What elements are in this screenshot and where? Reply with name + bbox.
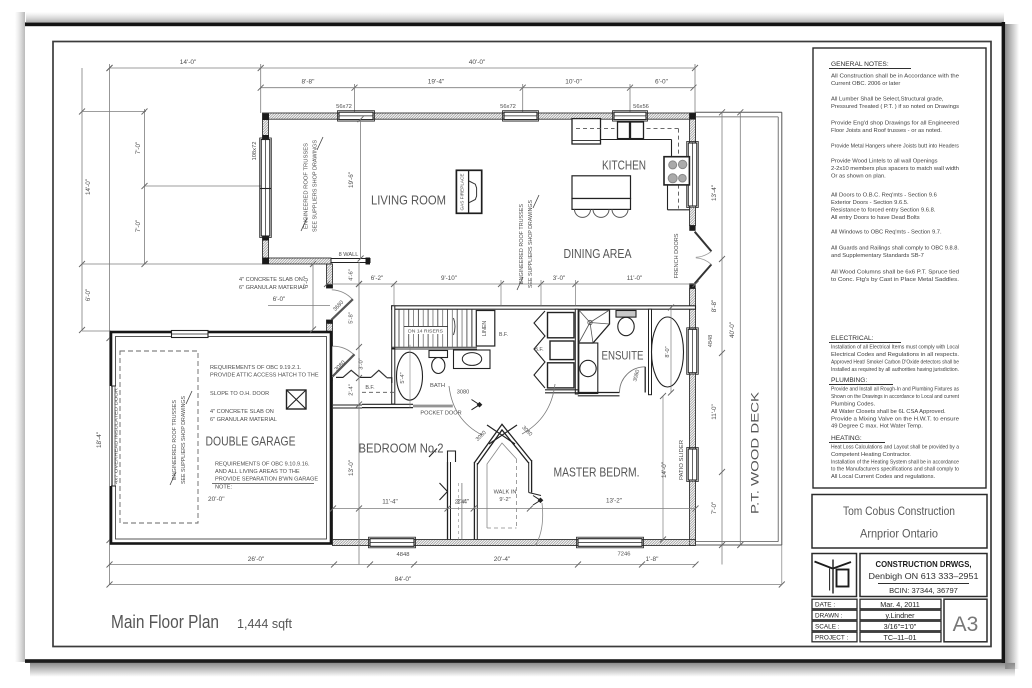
svg-text:BCIN: 37344, 36797: BCIN: 37344, 36797 — [889, 586, 958, 595]
svg-text:Or as shown on plan.: Or as shown on plan. — [831, 174, 886, 180]
svg-text:ENGINEERED ROOF TRUSSES: ENGINEERED ROOF TRUSSES — [172, 399, 178, 480]
svg-text:11'-0": 11'-0" — [627, 275, 643, 282]
svg-text:GAS FIREPLACE: GAS FIREPLACE — [460, 174, 465, 211]
svg-text:19'-6": 19'-6" — [348, 172, 355, 188]
svg-text:13'-2": 13'-2" — [606, 498, 622, 505]
svg-text:5'-4": 5'-4" — [400, 372, 406, 383]
svg-text:Plumbing Codes.: Plumbing Codes. — [831, 402, 876, 408]
svg-text:BATH: BATH — [430, 383, 445, 389]
svg-text:MASTER BEDRM.: MASTER BEDRM. — [554, 465, 640, 480]
svg-text:POCKET DOOR: POCKET DOOR — [420, 411, 461, 417]
svg-text:All Lumber Shall be Select,Str: All Lumber Shall be Select,Structural gr… — [831, 97, 944, 103]
svg-text:14'-0": 14'-0" — [180, 59, 197, 66]
svg-text:Approved Heat/ Smoke/ Carbon D: Approved Heat/ Smoke/ Carbon D'Oxide det… — [831, 360, 959, 366]
svg-text:20'-0": 20'-0" — [208, 496, 225, 503]
svg-text:REQUIREMENTS OF OBC 9.10.9.16.: REQUIREMENTS OF OBC 9.10.9.16. — [215, 462, 310, 468]
svg-text:3/16"=1'0": 3/16"=1'0" — [884, 622, 917, 631]
svg-text:14'-0": 14'-0" — [85, 179, 92, 195]
svg-text:3080: 3080 — [457, 390, 469, 396]
svg-text:Provide a Mixing Valve on the: Provide a Mixing Valve on the H.W.T. to … — [831, 417, 959, 423]
svg-text:DRAWN :: DRAWN : — [815, 613, 843, 620]
svg-text:ENSUITE: ENSUITE — [602, 351, 644, 363]
svg-text:2'-4": 2'-4" — [457, 499, 470, 506]
svg-text:DN 14 RISERS: DN 14 RISERS — [408, 329, 443, 335]
svg-text:DOUBLE GARAGE: DOUBLE GARAGE — [206, 434, 296, 449]
svg-text:49 Degree C max. Hot Water Tem: 49 Degree C max. Hot Water Temp. — [831, 424, 923, 430]
svg-text:TC–11–01: TC–11–01 — [883, 633, 916, 642]
svg-text:Installation of all Electrical: Installation of all Electrical Items mus… — [831, 345, 959, 351]
svg-text:NOTE:: NOTE: — [215, 485, 233, 491]
svg-text:Main Floor Plan: Main Floor Plan — [111, 612, 219, 632]
svg-text:8'-8": 8'-8" — [711, 300, 718, 313]
svg-text:ENGINEERED ROOF TRUSSES: ENGINEERED ROOF TRUSSES — [519, 203, 525, 284]
svg-text:Denbigh ON 613 333–2951: Denbigh ON 613 333–2951 — [869, 571, 979, 581]
svg-text:All Wood Columns shall be 6x6: All Wood Columns shall be 6x6 P.T. Spruc… — [831, 270, 959, 276]
svg-text:DATE :: DATE : — [815, 602, 835, 609]
svg-text:4'-6": 4'-6" — [349, 269, 355, 281]
svg-text:4" CONCRETE SLAB ON: 4" CONCRETE SLAB ON — [239, 277, 303, 283]
svg-text:Installed as required by all a: Installed as required by all authorities… — [831, 367, 959, 373]
svg-text:4x7 OVERHEAD INSULATED DOOR: 4x7 OVERHEAD INSULATED DOOR — [114, 387, 120, 484]
svg-text:11'-0": 11'-0" — [711, 404, 718, 420]
svg-text:A3: A3 — [953, 613, 979, 636]
svg-text:PROVIDE ATTIC ACCESS HATCH TO: PROVIDE ATTIC ACCESS HATCH TO THE — [210, 373, 319, 379]
svg-text:2-2x10 members plus spacers to: 2-2x10 members plus spacers to match wal… — [831, 166, 959, 172]
svg-text:Provide Metal Hangers where Jo: Provide Metal Hangers where Joists butt … — [831, 144, 959, 150]
svg-text:FRENCH DOORS: FRENCH DOORS — [674, 233, 680, 278]
svg-text:ELECTRICAL:: ELECTRICAL: — [831, 335, 874, 342]
svg-text:9'-10": 9'-10" — [441, 275, 457, 282]
svg-text:4848: 4848 — [708, 335, 714, 347]
svg-text:84'-0": 84'-0" — [395, 576, 412, 583]
svg-text:AND ALL LIVING AREAS TO THE: AND ALL LIVING AREAS TO THE — [215, 469, 300, 475]
svg-text:SEE SUPPLIERS SHOP DRAWINGS: SEE SUPPLIERS SHOP DRAWINGS — [528, 199, 534, 288]
svg-text:y.Lindner: y.Lindner — [885, 611, 915, 620]
svg-text:Installation of the Heating Sy: Installation of the Heating System shall… — [831, 460, 959, 466]
svg-text:Provide Wood Lintels to all wa: Provide Wood Lintels to all wall Opening… — [831, 159, 938, 165]
svg-text:Exterior Doors - Section 9.6.5: Exterior Doors - Section 9.6.5. — [831, 200, 909, 206]
svg-text:All Guards and Railings shall: All Guards and Railings shall comply to … — [831, 246, 959, 252]
svg-text:GENERAL NOTES:: GENERAL NOTES: — [831, 61, 889, 68]
svg-text:BEDROOM No.2: BEDROOM No.2 — [359, 441, 444, 456]
svg-text:7'-0": 7'-0" — [135, 220, 142, 233]
svg-text:and Supplementary Standards SB: and Supplementary Standards SB-7 — [831, 253, 924, 259]
svg-text:to the Manufacturers specifica: to the Manufacturers specifications and … — [831, 467, 959, 473]
svg-text:Shown on the Drawings in accor: Shown on the Drawings in accordance to L… — [831, 394, 959, 400]
svg-text:P.T. WOOD DECK: P.T. WOOD DECK — [750, 391, 762, 514]
svg-text:LINEN: LINEN — [482, 321, 488, 337]
svg-text:14'-0": 14'-0" — [661, 462, 668, 478]
svg-text:40'-0": 40'-0" — [469, 59, 486, 66]
svg-text:Tom Cobus Construction: Tom Cobus Construction — [843, 504, 955, 518]
svg-text:All Construction shall be in A: All Construction shall be in Accordance … — [831, 74, 959, 80]
svg-text:SEE SUPPLIERS SHOP DRAWINGS: SEE SUPPLIERS SHOP DRAWINGS — [313, 139, 319, 232]
svg-text:REQUIREMENTS OF OBC 9.19.2.1.: REQUIREMENTS OF OBC 9.19.2.1. — [210, 365, 302, 371]
svg-text:WALK IN: WALK IN — [494, 490, 517, 496]
svg-text:4" CONCRETE SLAB ON: 4" CONCRETE SLAB ON — [210, 409, 274, 415]
svg-text:ENGINEERED ROOF TRUSSES: ENGINEERED ROOF TRUSSES — [304, 142, 310, 229]
svg-text:SCALE :: SCALE : — [815, 624, 840, 631]
svg-text:6'-0": 6'-0" — [85, 289, 92, 302]
svg-text:CONSTRUCTION DRWGS,: CONSTRUCTION DRWGS, — [876, 560, 972, 569]
svg-text:8'-0": 8'-0" — [665, 346, 671, 357]
svg-text:Resistance to forced entry Sec: Resistance to forced entry Section 9.6.8… — [831, 208, 936, 214]
svg-text:6'-0": 6'-0" — [273, 296, 286, 303]
svg-text:Electrical Codes and Regulatio: Electrical Codes and Regulations in all … — [831, 352, 959, 358]
svg-text:All Local Current Codes and re: All Local Current Codes and regulations. — [831, 474, 935, 480]
svg-text:56x72: 56x72 — [500, 104, 516, 110]
svg-text:Pressured Treated ( P.T. ) if: Pressured Treated ( P.T. ) if so noted o… — [831, 104, 959, 110]
svg-text:108x72: 108x72 — [252, 141, 258, 160]
svg-text:Provide Eng'd shop Drawings fo: Provide Eng'd shop Drawings for all Engi… — [831, 121, 959, 127]
svg-text:SLOPE TO O.H. DOOR: SLOPE TO O.H. DOOR — [210, 391, 269, 397]
svg-text:26'-0": 26'-0" — [248, 556, 265, 563]
svg-text:Floor Joists and Roof trusses: Floor Joists and Roof trusses - or as no… — [831, 128, 942, 134]
svg-text:PROJECT :: PROJECT : — [815, 635, 848, 642]
svg-text:B.F.: B.F. — [534, 347, 543, 353]
svg-text:SEE SUPPLIERS SHOP DRAWINGS: SEE SUPPLIERS SHOP DRAWINGS — [181, 395, 187, 484]
svg-text:3'-0": 3'-0" — [359, 358, 365, 370]
svg-text:to Conc. Ftg's by Cast in Plac: to Conc. Ftg's by Cast in Place Metal Sa… — [831, 277, 959, 283]
svg-text:All Water Closets shall be 6L: All Water Closets shall be 6L CSA Approv… — [831, 409, 946, 415]
svg-text:All Windows to OBC Req'mts - S: All Windows to OBC Req'mts - Section 9.7… — [831, 230, 942, 236]
svg-text:7'-0": 7'-0" — [711, 502, 718, 515]
svg-text:LIVING ROOM: LIVING ROOM — [371, 193, 446, 208]
svg-text:Arnprior Ontario: Arnprior Ontario — [860, 527, 938, 541]
svg-text:Competent Heating Contractor.: Competent Heating Contractor. — [831, 452, 911, 458]
svg-text:19'-4": 19'-4" — [428, 79, 445, 86]
svg-text:6'-0": 6'-0" — [655, 79, 669, 86]
svg-text:5'-8": 5'-8" — [349, 312, 355, 324]
svg-text:9'-2": 9'-2" — [499, 497, 510, 503]
svg-text:6" GRANULAR MATERIAL: 6" GRANULAR MATERIAL — [239, 285, 306, 291]
svg-text:1'-8": 1'-8" — [646, 556, 660, 563]
svg-text:All Doors to O.B.C. Req'mts -: All Doors to O.B.C. Req'mts - Section 9.… — [831, 193, 937, 199]
svg-text:4848: 4848 — [397, 552, 410, 558]
svg-text:Current OBC. 2006 or later: Current OBC. 2006 or later — [831, 81, 900, 87]
svg-text:PLUMBING:: PLUMBING: — [831, 377, 867, 384]
svg-text:13'-0": 13'-0" — [348, 460, 355, 476]
svg-text:6" GRANULAR MATERIAL: 6" GRANULAR MATERIAL — [210, 417, 277, 423]
svg-text:11'-4": 11'-4" — [382, 499, 398, 506]
svg-text:B.F.: B.F. — [499, 332, 508, 338]
svg-text:6'-2": 6'-2" — [371, 275, 384, 282]
svg-text:PATIO SLIDER: PATIO SLIDER — [679, 440, 685, 480]
svg-text:Heat Loss Calculations and Lay: Heat Loss Calculations and Layout shall … — [831, 445, 960, 451]
svg-text:B.F.: B.F. — [365, 385, 374, 391]
svg-text:6'-0": 6'-0" — [303, 276, 310, 289]
svg-text:Provide and Install all Rough-: Provide and Install all Rough-In and Plu… — [831, 387, 959, 393]
svg-text:18'-4": 18'-4" — [96, 432, 103, 448]
svg-text:3'-0": 3'-0" — [553, 275, 566, 282]
svg-text:13'-4": 13'-4" — [711, 185, 718, 201]
svg-text:PROVIDE SEPARATION B'WN GARAGE: PROVIDE SEPARATION B'WN GARAGE — [215, 477, 318, 483]
svg-text:1,444 sqft: 1,444 sqft — [237, 617, 293, 631]
svg-text:2'-4": 2'-4" — [349, 384, 355, 396]
svg-text:All entry Doors to have Dead B: All entry Doors to have Dead Bolts — [831, 215, 920, 221]
svg-text:Mar. 4, 2011: Mar. 4, 2011 — [880, 600, 919, 609]
svg-text:56x72: 56x72 — [336, 104, 352, 110]
svg-text:KITCHEN: KITCHEN — [602, 159, 646, 173]
svg-text:7'-0": 7'-0" — [135, 142, 142, 155]
svg-text:HEATING:: HEATING: — [831, 435, 862, 442]
svg-text:40'-0": 40'-0" — [729, 322, 736, 338]
svg-text:DINING AREA: DINING AREA — [564, 247, 633, 261]
svg-text:8 WALL: 8 WALL — [339, 252, 359, 258]
svg-text:8'-8": 8'-8" — [302, 79, 316, 86]
svg-text:56x56: 56x56 — [633, 104, 649, 110]
svg-text:10'-0": 10'-0" — [565, 79, 582, 86]
svg-text:7246: 7246 — [618, 552, 631, 558]
svg-text:20'-4": 20'-4" — [494, 556, 511, 563]
